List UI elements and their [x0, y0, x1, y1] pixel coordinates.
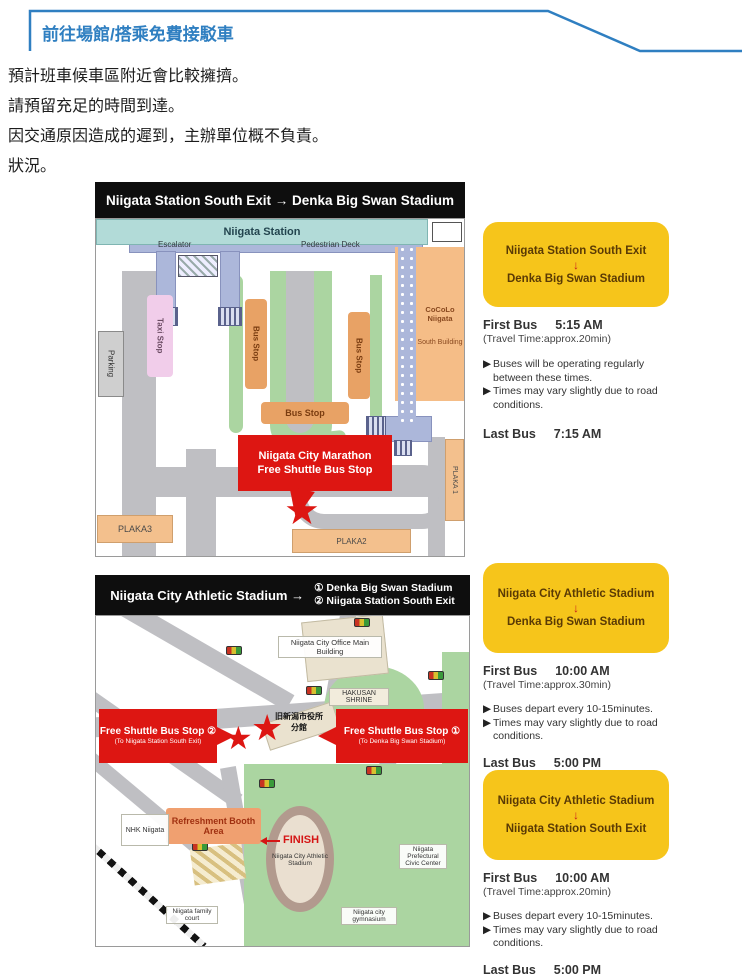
escalator-icon: [178, 255, 218, 277]
body-paragraph: 預計班車候車區附近會比較擁擠。: [8, 62, 728, 86]
parking-area: Parking: [98, 331, 124, 397]
body-paragraph: 狀況。: [8, 152, 728, 176]
map2-title-option1: ① Denka Big Swan Stadium: [314, 582, 455, 595]
stairs-icon: [218, 307, 242, 326]
cocolo-label-top: CoCoLo Niigata: [416, 305, 464, 323]
route-to: Niigata Station South Exit: [506, 823, 647, 835]
deck-arm: [220, 251, 240, 309]
family-court-label: Niigata family court: [166, 906, 218, 924]
route-from: Niigata Station South Exit: [506, 245, 647, 257]
traffic-light-icon: [259, 779, 275, 788]
traffic-light-icon: [226, 646, 242, 655]
last-bus-time: 5:00 PM: [554, 963, 601, 977]
route-from: Niigata City Athletic Stadium: [498, 588, 655, 600]
map1-title: Niigata Station South Exit → Denka Big S…: [106, 193, 454, 208]
median-green: [370, 275, 382, 425]
callout-line1: Niigata City Marathon: [238, 449, 392, 463]
last-bus-label: Last Bus: [483, 756, 536, 770]
station-building: Niigata Station: [96, 219, 428, 245]
note-text: Buses depart every 10-15minutes.: [493, 910, 653, 924]
plaka3-label: PLAKA3: [118, 524, 152, 534]
road-segment: [186, 449, 216, 556]
bus-stop: Bus Stop: [245, 299, 267, 389]
traffic-light-icon: [354, 618, 370, 627]
stairs-icon: [394, 440, 412, 456]
down-arrow-icon: ↓: [573, 258, 579, 272]
travel-time: (Travel Time:approx.30min): [483, 679, 683, 691]
shuttle-stop-star-icon: ★: [284, 491, 320, 531]
pedestrian-deck-label: Pedestrian Deck: [301, 240, 360, 249]
taxi-stop: Taxi Stop: [147, 295, 173, 377]
escalator-label: Escalator: [158, 240, 191, 249]
map1-title-bar: Niigata Station South Exit → Denka Big S…: [95, 182, 465, 218]
map2-title-option2: ② Niigata Station South Exit: [314, 595, 455, 608]
bullet-icon: ▶: [483, 924, 493, 951]
first-bus-label: First Bus: [483, 871, 537, 885]
plaka1-building: PLAKA 1: [445, 439, 464, 521]
walkway-dotted-path: [398, 245, 416, 423]
first-bus-label: First Bus: [483, 664, 537, 678]
stadium-label: Niigata City Athletic Stadium: [272, 853, 328, 867]
note-text: Times may vary slightly due to road cond…: [493, 385, 683, 412]
bullet-icon: ▶: [483, 703, 493, 717]
travel-time: (Travel Time:approx.20min): [483, 333, 683, 345]
callout-tail: [318, 727, 336, 745]
bullet-icon: ▶: [483, 717, 493, 744]
plaka2-label: PLAKA2: [336, 537, 366, 546]
map1-canvas: Niigata Station Escalator Pedestrian Dec…: [95, 218, 465, 557]
taxi-stop-label: Taxi Stop: [156, 318, 165, 353]
travel-time: (Travel Time:approx.20min): [483, 886, 683, 898]
bullet-icon: ▶: [483, 358, 493, 385]
first-bus-time: 10:00 AM: [555, 871, 609, 885]
down-arrow-icon: ↓: [573, 808, 579, 822]
finish-arrow-icon: [266, 840, 280, 842]
crossing-icon: [432, 222, 462, 242]
bullet-icon: ▶: [483, 910, 493, 924]
note-text: Times may vary slightly due to road cond…: [493, 924, 683, 951]
map-athletic-stadium: Niigata City Athletic Stadium → ① Denka …: [95, 575, 470, 947]
schedule-card-station-to-stadium: Niigata Station South Exit ↓ Denka Big S…: [483, 222, 669, 307]
parking-label: Parking: [107, 350, 116, 377]
note-text: Times may vary slightly due to road cond…: [493, 717, 683, 744]
map2-canvas: Niigata City Office Main Building HAKUSA…: [95, 615, 470, 947]
bullet-icon: ▶: [483, 385, 493, 412]
civic-center-label: Niigata Prefectural Civic Center: [399, 844, 447, 869]
plaka3-building: PLAKA3: [97, 515, 173, 543]
road-segment: [95, 615, 294, 711]
stop2-subtitle: (To Niigata Station South Exit): [99, 738, 217, 746]
first-bus-time: 5:15 AM: [555, 318, 602, 332]
bus-stop: Bus Stop: [261, 402, 349, 424]
bus-stop: Bus Stop: [348, 312, 370, 399]
schedule-text-1: First Bus 5:15 AM (Travel Time:approx.20…: [483, 318, 683, 441]
nhk-label: NHK Niigata: [121, 814, 169, 846]
map2-title-bar: Niigata City Athletic Stadium → ① Denka …: [95, 575, 470, 615]
last-bus-label: Last Bus: [483, 963, 536, 977]
body-paragraph: 請預留充足的時間到達。: [8, 92, 728, 116]
route-to: Denka Big Swan Stadium: [507, 616, 645, 628]
stop1-title: Free Shuttle Bus Stop ①: [336, 726, 468, 739]
route-from: Niigata City Athletic Stadium: [498, 795, 655, 807]
schedule-text-2: First Bus 10:00 AM (Travel Time:approx.3…: [483, 664, 683, 770]
traffic-light-icon: [366, 766, 382, 775]
shuttle-stop-callout: Niigata City Marathon Free Shuttle Bus S…: [238, 435, 392, 491]
gymnasium-label: Niigata city gymnasium: [341, 907, 397, 925]
map2-title-main: Niigata City Athletic Stadium →: [110, 588, 304, 603]
stop2-title: Free Shuttle Bus Stop ②: [99, 726, 217, 739]
schedule-card-athletic-to-bigswan: Niigata City Athletic Stadium ↓ Denka Bi…: [483, 563, 669, 653]
shuttle-stop1-callout: Free Shuttle Bus Stop ① (To Denka Big Sw…: [336, 709, 468, 763]
last-bus-label: Last Bus: [483, 427, 536, 441]
note-text: Buses will be operating regularly betwee…: [493, 358, 683, 385]
bus-stop-label: Bus Stop: [285, 408, 325, 418]
schedule-text-3: First Bus 10:00 AM (Travel Time:approx.2…: [483, 871, 683, 977]
finish-arrowhead-icon: [260, 837, 267, 845]
bus-stop-label: Bus Stop: [355, 338, 364, 373]
last-bus-time: 5:00 PM: [554, 756, 601, 770]
plaka1-label: PLAKA 1: [451, 466, 458, 494]
cocolo-label-bottom: South Building: [416, 339, 464, 346]
stop1-subtitle: (To Denka Big Swan Stadium): [336, 738, 468, 746]
shuttle-stop-star-icon: ★: [224, 722, 253, 754]
last-bus-time: 7:15 AM: [554, 427, 601, 441]
refreshment-label: Refreshment Booth Area: [166, 816, 261, 836]
traffic-light-icon: [306, 686, 322, 695]
first-bus-label: First Bus: [483, 318, 537, 332]
refreshment-booth-area: Refreshment Booth Area: [166, 808, 261, 844]
note-text: Buses depart every 10-15minutes.: [493, 703, 653, 717]
traffic-light-icon: [428, 671, 444, 680]
map-station-to-stadium: Niigata Station South Exit → Denka Big S…: [95, 182, 465, 557]
finish-label: FINISH: [283, 834, 319, 846]
page-title: 前往場館/搭乘免費接駁車: [42, 20, 234, 45]
shuttle-stop-star-icon: ★: [251, 710, 283, 746]
city-office-label: Niigata City Office Main Building: [278, 636, 382, 658]
down-arrow-icon: ↓: [573, 601, 579, 615]
station-label: Niigata Station: [223, 226, 300, 238]
first-bus-time: 10:00 AM: [555, 664, 609, 678]
body-paragraph: 因交通原因造成的遲到，主辦單位概不負責。: [8, 122, 728, 146]
schedule-card-athletic-to-station: Niigata City Athletic Stadium ↓ Niigata …: [483, 770, 669, 860]
bus-stop-label: Bus Stop: [252, 326, 261, 361]
route-to: Denka Big Swan Stadium: [507, 273, 645, 285]
hakusan-shrine-label: HAKUSAN SHRINE: [329, 688, 389, 706]
shuttle-stop2-callout: Free Shuttle Bus Stop ② (To Niigata Stat…: [99, 709, 217, 763]
callout-line2: Free Shuttle Bus Stop: [238, 463, 392, 477]
